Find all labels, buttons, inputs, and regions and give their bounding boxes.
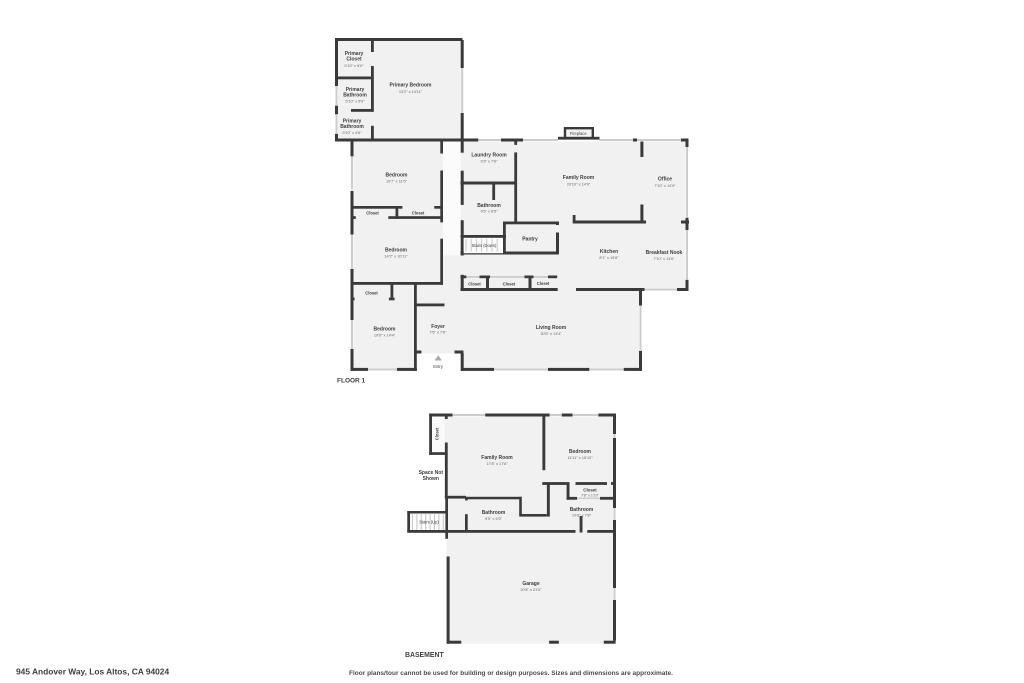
svg-text:Bathroom: Bathroom (343, 93, 367, 99)
svg-text:Closet: Closet (468, 281, 481, 286)
svg-text:14'2" x 10'11": 14'2" x 10'11" (384, 254, 408, 259)
svg-text:Closet: Closet (365, 290, 378, 295)
svg-text:10'7" x 11'5": 10'7" x 11'5" (386, 179, 408, 184)
svg-text:Closet: Closet (583, 488, 597, 493)
svg-text:Space Not: Space Not (419, 470, 444, 476)
svg-text:Fireplace: Fireplace (570, 131, 588, 136)
svg-text:Stairs (Down): Stairs (Down) (472, 243, 497, 248)
svg-text:Entry: Entry (433, 364, 444, 369)
svg-text:11'11" x 15'10": 11'11" x 15'10" (567, 455, 593, 460)
svg-text:20'8" x 21'5": 20'8" x 21'5" (520, 587, 542, 592)
svg-text:Closet: Closet (346, 57, 362, 63)
svg-text:BASEMENT: BASEMENT (405, 652, 444, 659)
svg-text:5'10" x 5'0": 5'10" x 5'0" (345, 99, 365, 104)
svg-text:10'6" x 14'4": 10'6" x 14'4" (374, 333, 396, 338)
svg-text:Primary Bedroom: Primary Bedroom (390, 83, 433, 89)
svg-text:Family Room: Family Room (563, 175, 595, 181)
svg-text:10'8" x 7'8": 10'8" x 7'8" (572, 512, 592, 517)
svg-text:7'8" x 1'10": 7'8" x 1'10" (581, 493, 599, 497)
svg-text:8'1" x 19'8": 8'1" x 19'8" (599, 255, 619, 260)
svg-text:9'10" x 4'6": 9'10" x 4'6" (342, 130, 362, 135)
svg-text:FLOOR 1: FLOOR 1 (337, 378, 366, 385)
svg-text:Closet: Closet (503, 281, 516, 286)
svg-text:Bedroom: Bedroom (386, 173, 409, 179)
svg-text:Floor plans/tour cannot be use: Floor plans/tour cannot be used for buil… (349, 670, 673, 677)
svg-text:Office: Office (658, 176, 672, 182)
svg-text:13'2" x 14'11": 13'2" x 14'11" (399, 89, 423, 94)
svg-text:Pantry: Pantry (522, 237, 538, 243)
svg-text:9'3" x 7'6": 9'3" x 7'6" (480, 159, 498, 164)
svg-text:Closet: Closet (435, 427, 440, 440)
svg-text:5'10" x 6'0": 5'10" x 6'0" (344, 63, 364, 68)
svg-text:7'6" x 7'6": 7'6" x 7'6" (429, 330, 447, 335)
svg-text:7'10" x 14'9": 7'10" x 14'9" (654, 183, 676, 188)
svg-text:7'10" x 11'6": 7'10" x 11'6" (653, 256, 675, 261)
svg-text:945 Andover Way, Los Altos, CA: 945 Andover Way, Los Altos, CA 94024 (16, 667, 169, 677)
svg-text:30'5" x 13'4": 30'5" x 13'4" (540, 331, 562, 336)
svg-text:9'5" x 5'5": 9'5" x 5'5" (485, 516, 503, 521)
svg-text:20'10" x 14'9": 20'10" x 14'9" (567, 182, 591, 187)
svg-text:9'5" x 8'5": 9'5" x 8'5" (480, 209, 498, 214)
svg-text:Shown: Shown (423, 476, 439, 482)
svg-text:Closet: Closet (366, 211, 379, 216)
svg-text:Stairs (Up): Stairs (Up) (419, 520, 439, 525)
svg-text:Closet: Closet (412, 211, 425, 216)
svg-text:Closet: Closet (537, 281, 550, 286)
svg-text:Laundry Room: Laundry Room (471, 153, 507, 159)
svg-text:Bathroom: Bathroom (340, 124, 364, 130)
svg-text:17'8" x 17'6": 17'8" x 17'6" (486, 461, 508, 466)
